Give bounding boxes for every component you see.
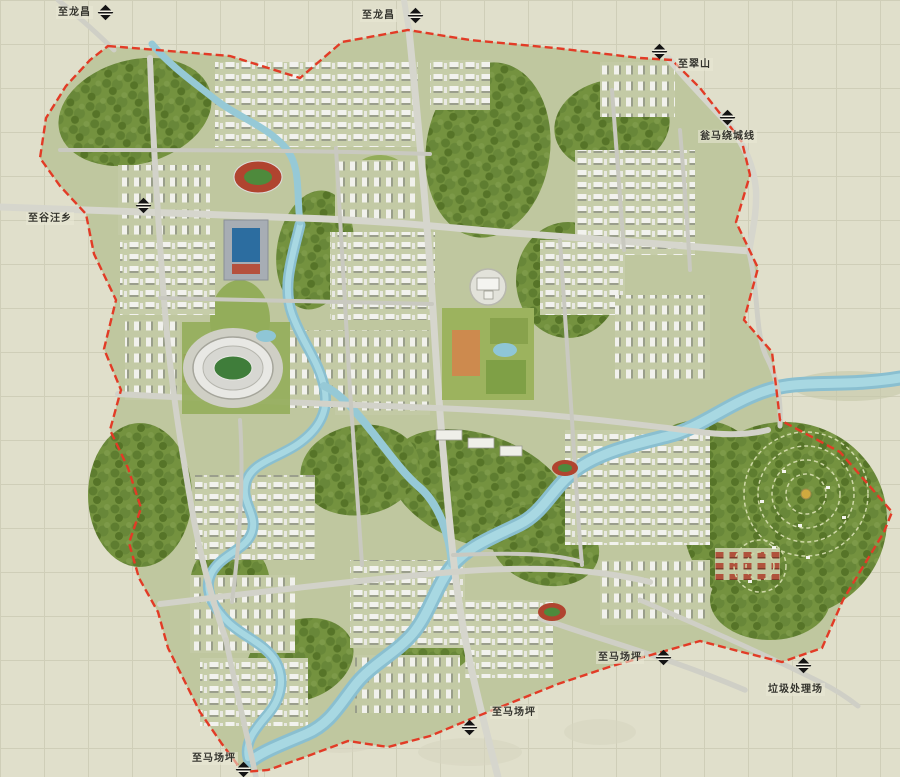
urban-block [540,240,625,315]
pond [256,330,276,342]
urban-block [330,62,418,147]
forest-hill [88,423,192,567]
urban-block [430,60,490,110]
urban-block [335,160,415,220]
road-north-exit [404,0,409,30]
urban-block [200,658,308,726]
master-plan-rendering [0,0,900,777]
urban-block [600,560,710,625]
swimming-pool [232,228,260,262]
park-lawn [486,360,526,394]
park-grove [490,318,528,344]
park-plaza [452,330,480,376]
athletics-field [244,169,272,185]
mini-field [558,464,572,472]
urban-block [118,165,210,235]
civic-building-wing [484,291,493,299]
road-northwest-exit [58,0,114,50]
aquatic-stands [232,264,260,274]
hill-park-center [801,489,811,499]
urban-block [615,295,710,380]
stadium-field [214,356,252,380]
urban-block [120,240,215,315]
civic-building [477,278,499,290]
mini-field [544,608,560,617]
park-pond [493,343,517,357]
map-canvas: 至龙昌 至龙昌 至翠山 瓮马绕城线 至谷汪乡 至马场坪 垃圾处理场 至马场坪 至… [0,0,900,777]
